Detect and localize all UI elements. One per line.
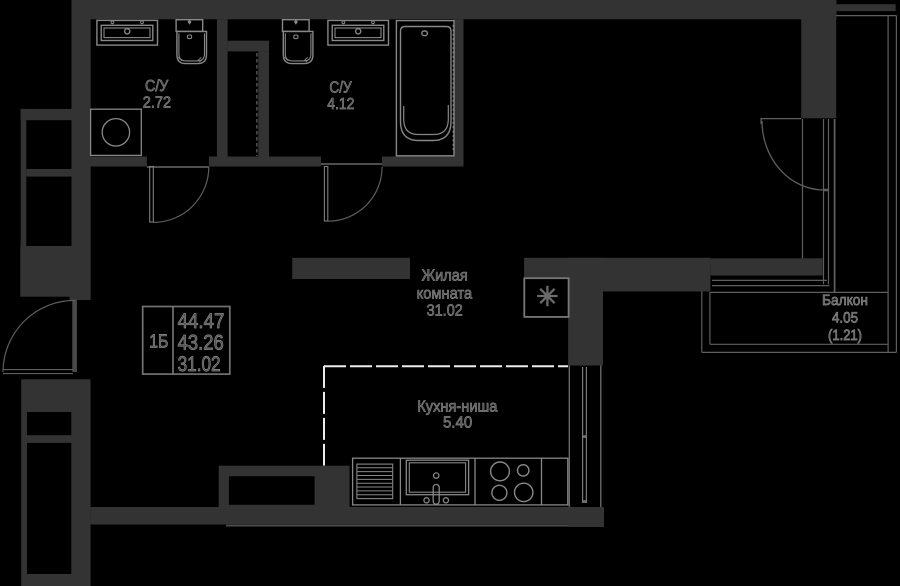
svg-text:31.02: 31.02 xyxy=(178,353,221,376)
svg-text:4.12: 4.12 xyxy=(327,96,354,113)
svg-text:43.26: 43.26 xyxy=(178,332,224,355)
svg-text:1Б: 1Б xyxy=(149,331,168,352)
svg-text:5.40: 5.40 xyxy=(443,415,472,432)
svg-text:Жилая: Жилая xyxy=(422,268,468,285)
svg-text:31.02: 31.02 xyxy=(427,303,463,320)
svg-text:2.72: 2.72 xyxy=(143,94,171,111)
svg-text:С/У: С/У xyxy=(145,78,169,95)
svg-text:(1.21): (1.21) xyxy=(828,327,862,344)
svg-text:4.05: 4.05 xyxy=(832,309,858,326)
svg-text:С/У: С/У xyxy=(329,79,352,96)
svg-text:комната: комната xyxy=(417,285,473,302)
svg-text:Балкон: Балкон xyxy=(822,292,868,309)
svg-text:Кухня-ниша: Кухня-ниша xyxy=(417,399,497,416)
svg-text:44.47: 44.47 xyxy=(178,310,225,333)
